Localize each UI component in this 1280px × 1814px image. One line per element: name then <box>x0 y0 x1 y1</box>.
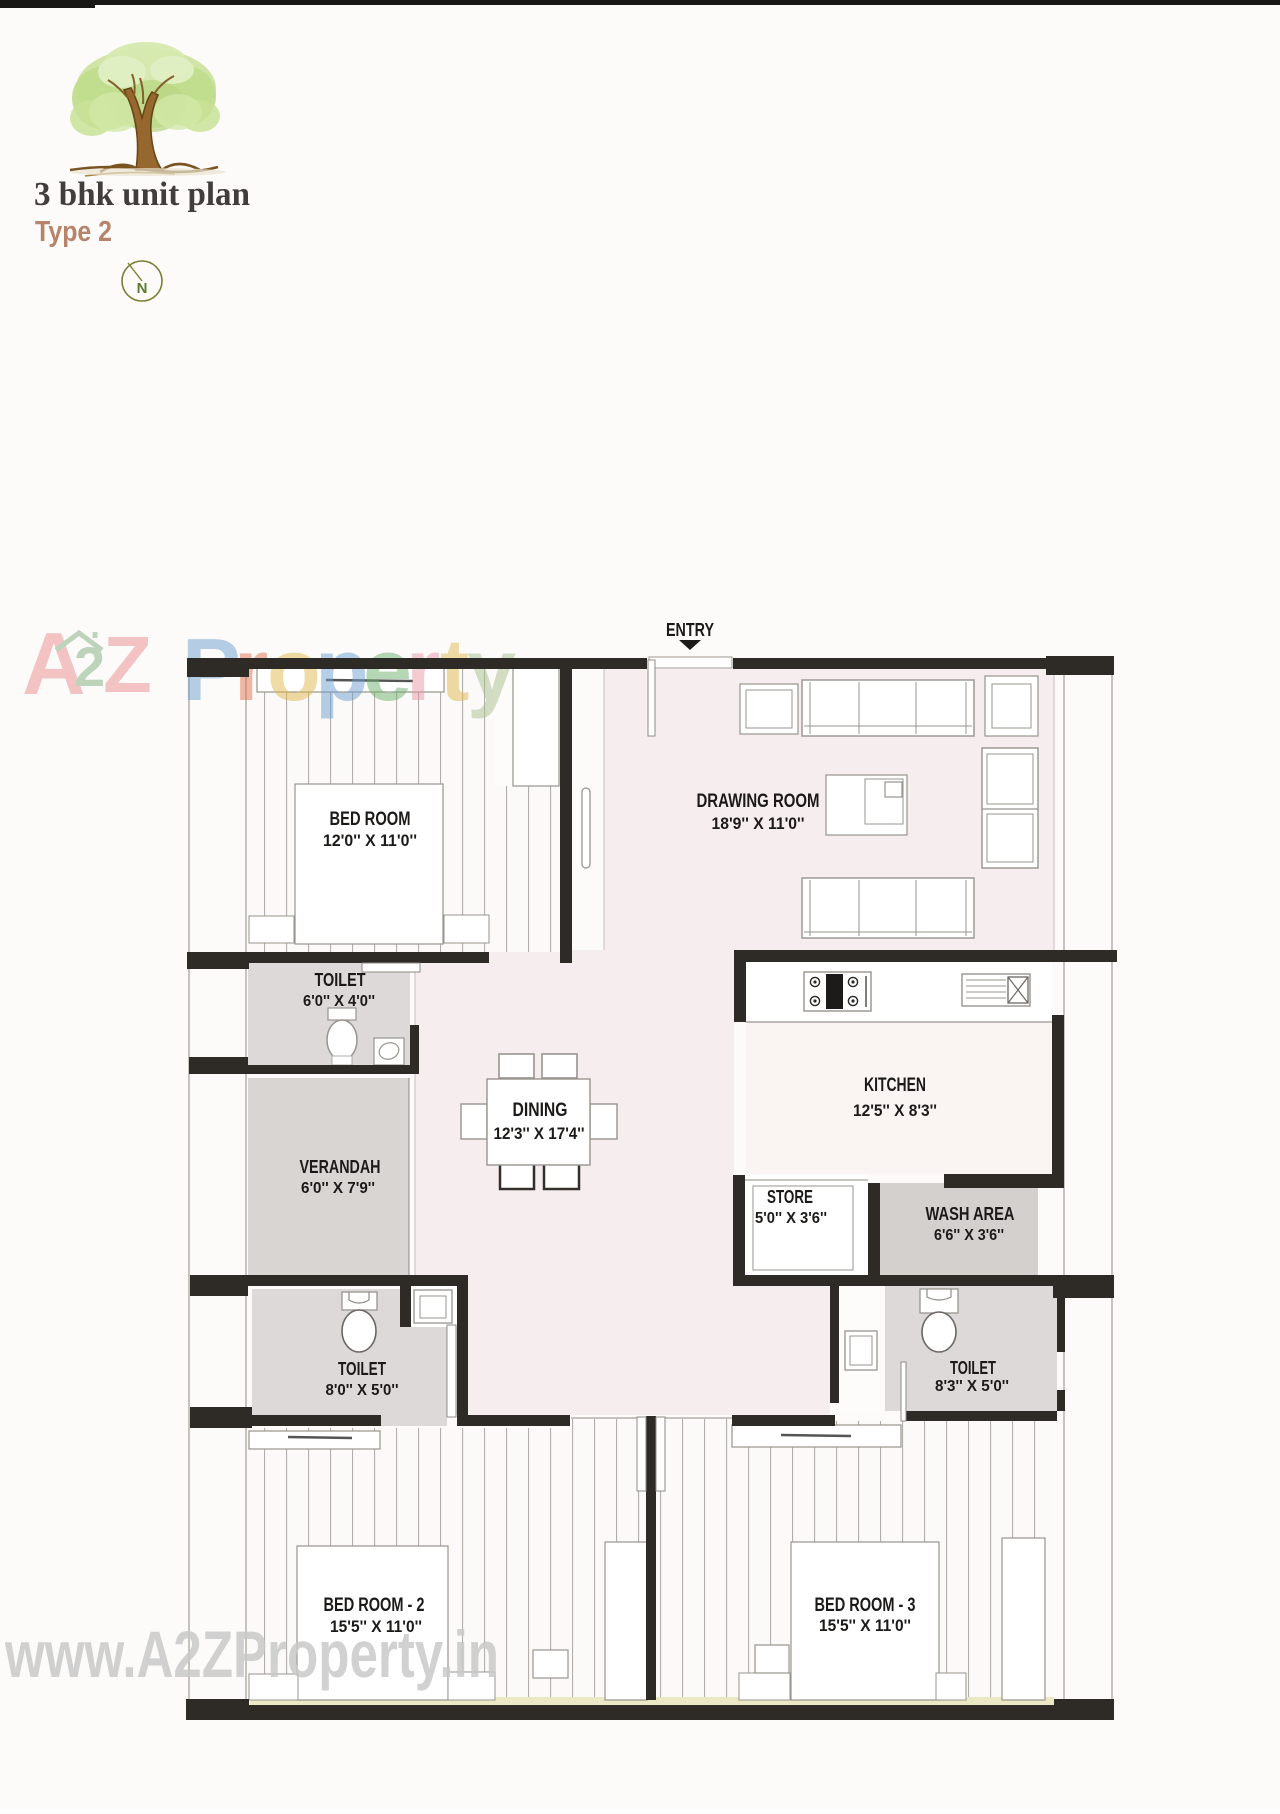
svg-text:8'3'' X 5'0'': 8'3'' X 5'0'' <box>935 1378 1009 1395</box>
svg-text:15'5'' X 11'0'': 15'5'' X 11'0'' <box>330 1617 422 1636</box>
svg-text:TOILET: TOILET <box>338 1359 386 1379</box>
svg-text:y: y <box>467 620 516 719</box>
svg-text:15'5'' X 11'0'': 15'5'' X 11'0'' <box>819 1616 911 1635</box>
svg-text:Type 2: Type 2 <box>35 216 112 248</box>
svg-text:6'0'' X 4'0'': 6'0'' X 4'0'' <box>303 993 375 1010</box>
svg-text:DINING: DINING <box>513 1100 568 1121</box>
svg-text:N: N <box>137 280 148 297</box>
svg-text:6'0'' X 7'9'': 6'0'' X 7'9'' <box>301 1180 375 1197</box>
svg-text:8'0'' X 5'0'': 8'0'' X 5'0'' <box>326 1382 399 1399</box>
svg-text:BED ROOM - 2: BED ROOM - 2 <box>324 1595 425 1616</box>
svg-text:STORE: STORE <box>767 1187 813 1207</box>
svg-text:www.A2ZProperty.in: www.A2ZProperty.in <box>4 1617 499 1691</box>
svg-text:VERANDAH: VERANDAH <box>300 1157 381 1177</box>
svg-text:TOILET: TOILET <box>950 1358 996 1378</box>
svg-text:Z: Z <box>103 620 152 709</box>
svg-text:12'0'' X 11'0'': 12'0'' X 11'0'' <box>323 831 417 850</box>
svg-text:t: t <box>440 620 469 719</box>
svg-text:p: p <box>315 620 369 719</box>
svg-text:TOILET: TOILET <box>315 970 366 990</box>
svg-text:5'0'' X 3'6'': 5'0'' X 3'6'' <box>755 1210 827 1227</box>
svg-text:KITCHEN: KITCHEN <box>864 1075 926 1096</box>
svg-text:DRAWING ROOM: DRAWING ROOM <box>697 791 820 812</box>
svg-text:18'9'' X 11'0'': 18'9'' X 11'0'' <box>712 814 805 833</box>
svg-text:6'6'' X 3'6'': 6'6'' X 3'6'' <box>934 1227 1004 1244</box>
svg-text:WASH AREA: WASH AREA <box>926 1204 1015 1224</box>
svg-text:BED ROOM - 3: BED ROOM - 3 <box>815 1595 916 1616</box>
svg-text:12'5'' X 8'3'': 12'5'' X 8'3'' <box>853 1101 937 1120</box>
svg-text:2: 2 <box>74 635 105 698</box>
svg-text:3 bhk unit plan: 3 bhk unit plan <box>34 176 250 213</box>
svg-text:BED ROOM: BED ROOM <box>330 809 411 830</box>
svg-text:12'3'' X 17'4'': 12'3'' X 17'4'' <box>494 1124 585 1143</box>
svg-text:e: e <box>363 620 412 719</box>
svg-text:r: r <box>406 620 440 719</box>
svg-text:ENTRY: ENTRY <box>666 620 714 640</box>
svg-text:o: o <box>267 620 321 719</box>
